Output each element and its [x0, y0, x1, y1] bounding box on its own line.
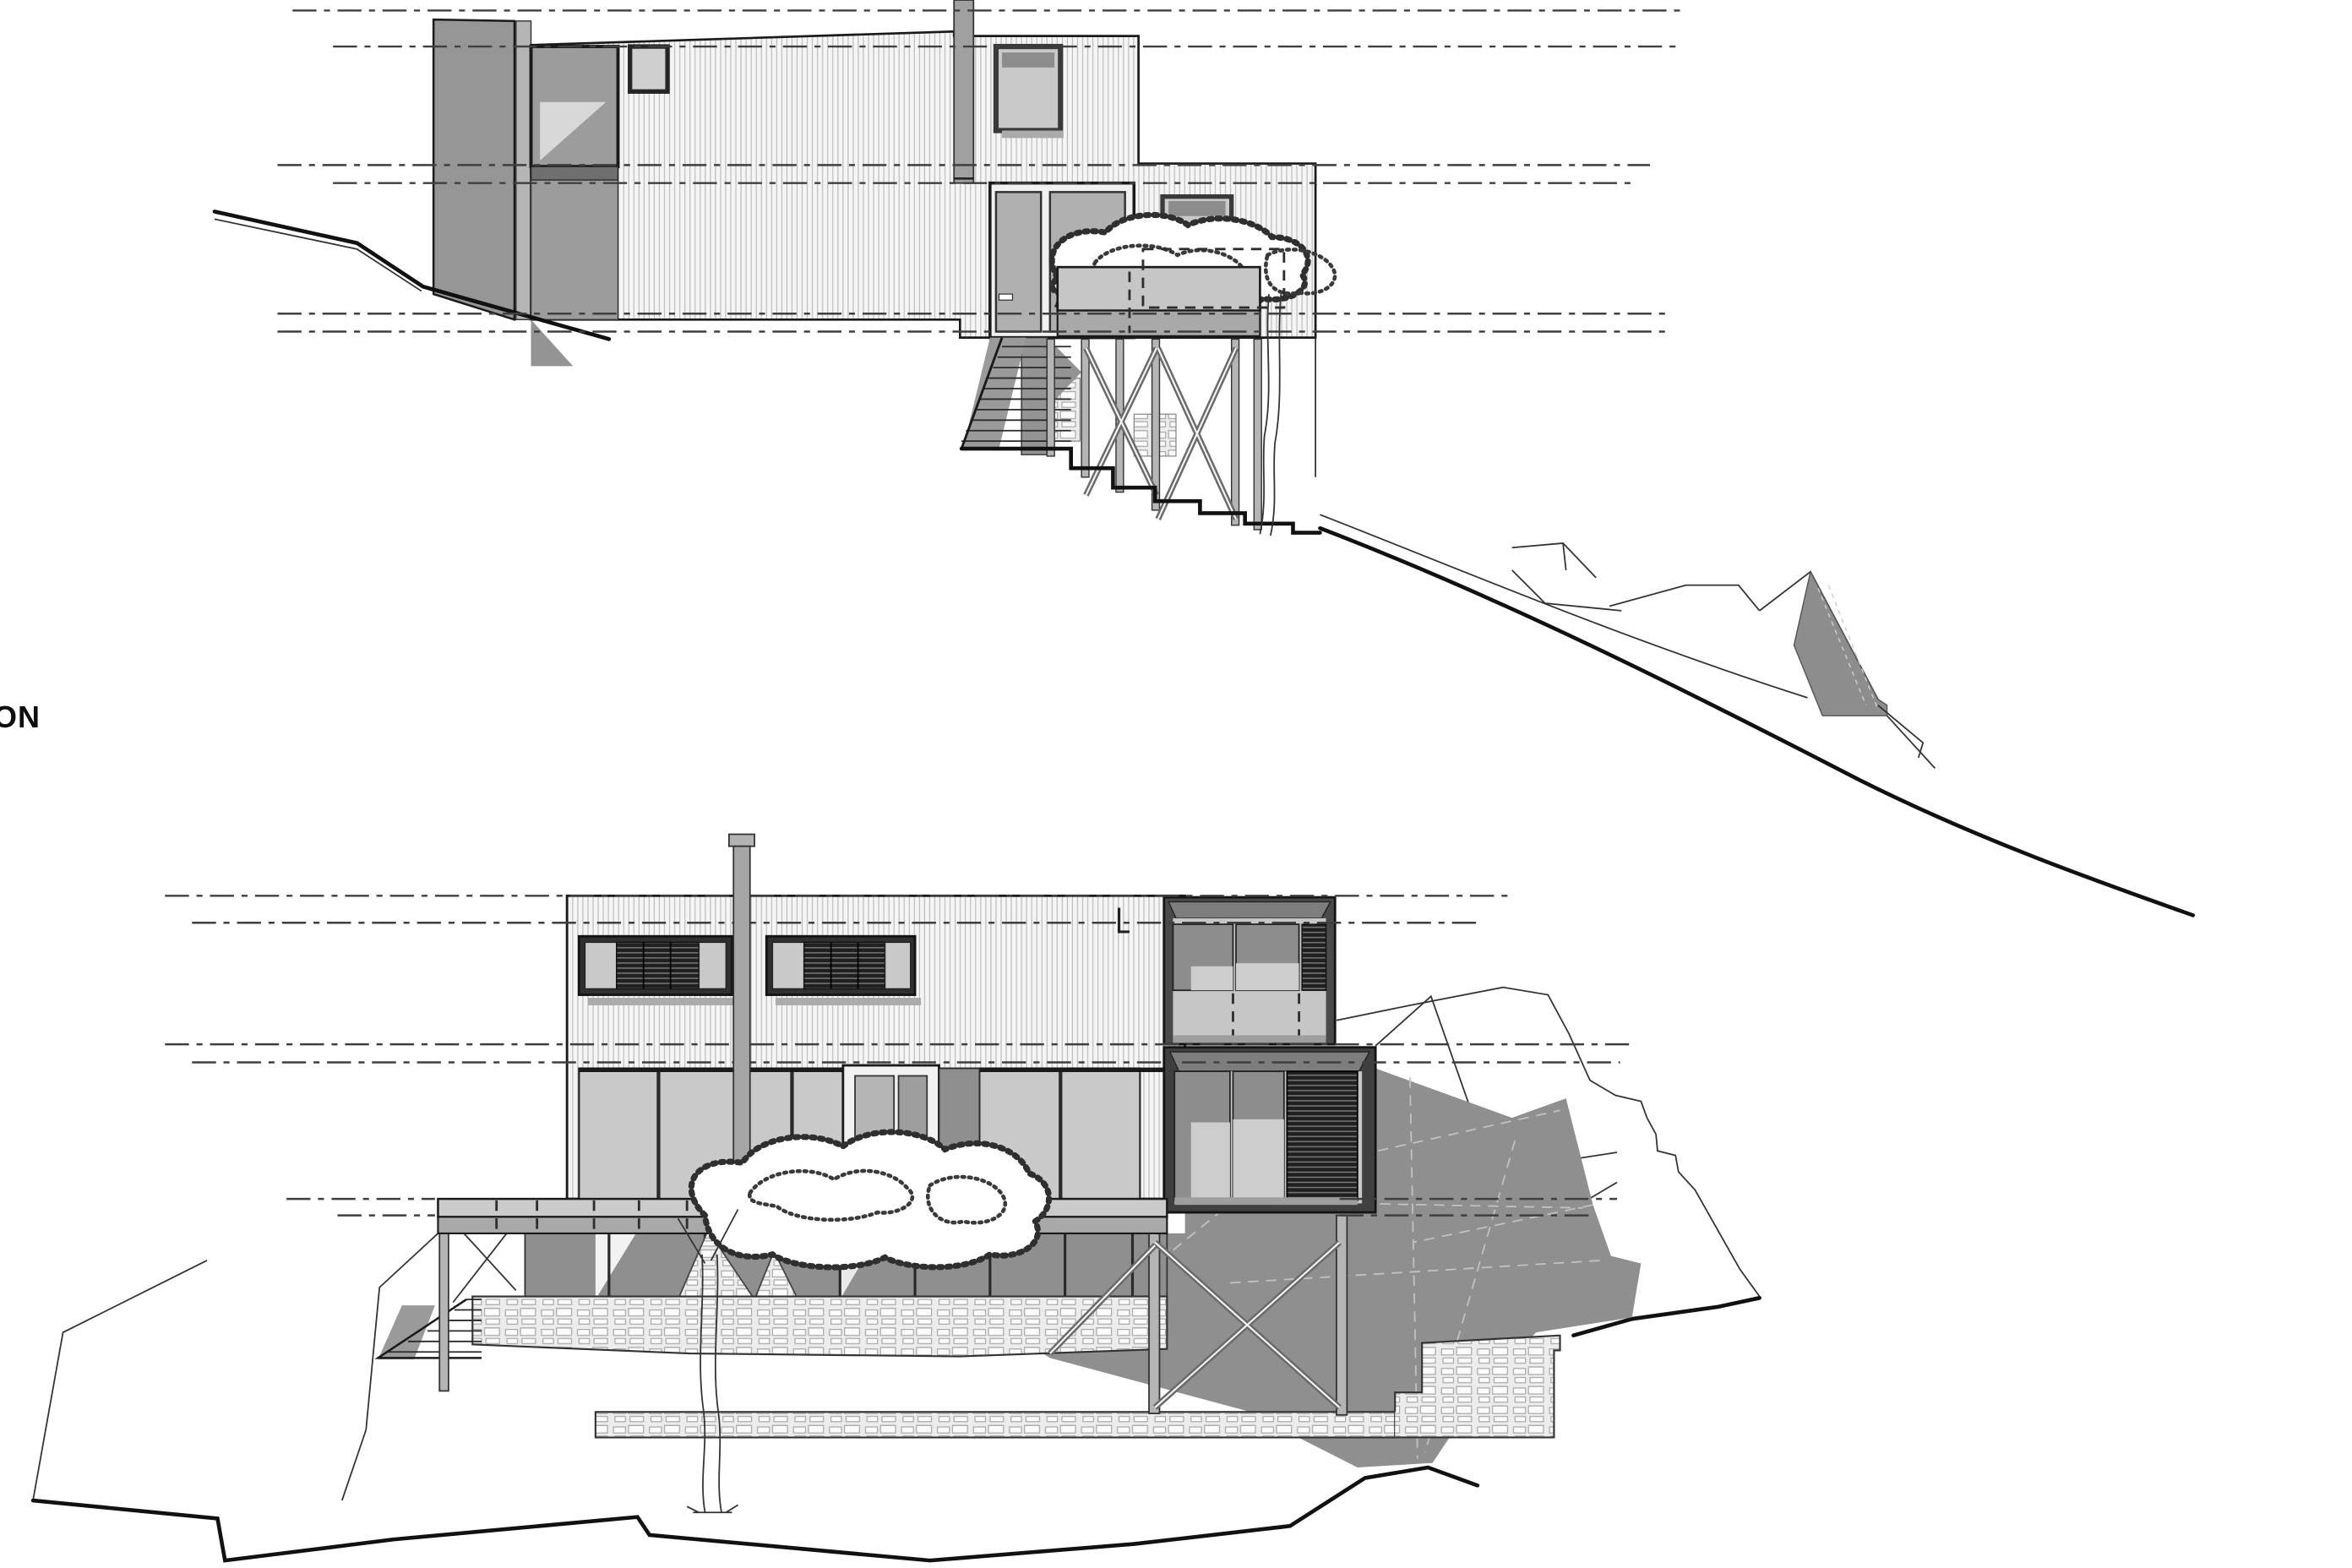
chimney-lower [729, 834, 754, 1199]
ribbon-window-2 [766, 936, 921, 1005]
elevations-drawing [0, 0, 2352, 1568]
tree-upper [1052, 215, 1335, 536]
lower-stone-band [596, 1412, 1395, 1437]
chimney-upper [954, 0, 973, 183]
ribbon-window-1 [579, 936, 738, 1005]
rock-facet-shaded [1794, 572, 1887, 716]
gable-wall [433, 19, 514, 319]
door-handle [999, 294, 1012, 300]
upper-right-window [996, 46, 1064, 138]
lower-bay-box [1164, 1048, 1375, 1212]
upper-corner-window [531, 46, 618, 366]
stair-shadow [963, 338, 1026, 449]
elevation-label: ON [0, 700, 41, 735]
upper-elevation-view [215, 0, 2193, 915]
upper-bay-box [1164, 897, 1335, 1044]
upper-understructure [961, 338, 1320, 533]
upper-stone-wall [472, 1297, 1167, 1357]
terrain-right-upper [1320, 514, 2192, 915]
small-square-window [630, 46, 667, 91]
lower-elevation-view [33, 834, 1760, 1560]
drawing-canvas: ON [0, 0, 2352, 1568]
gable-edge-strip [516, 21, 531, 319]
lower-stairs [378, 1299, 482, 1359]
